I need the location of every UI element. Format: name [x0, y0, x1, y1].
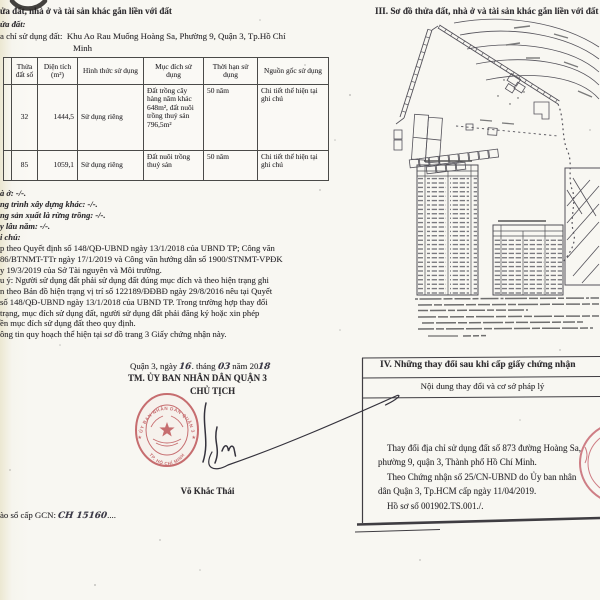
seal-star-icon: [159, 422, 174, 437]
signer-name: Võ Khắc Thái: [150, 486, 265, 496]
change-line: Thay đổi địa chỉ sử dụng đất số 873 đườn…: [378, 441, 596, 455]
col-header-thoi-han: Thời hạn sử dụng: [204, 58, 258, 85]
cadastral-map-drawing: [368, 18, 600, 350]
left-page-heading: ửa đất, nhà ở và tài sản khác gắn liền v…: [0, 6, 172, 16]
note-line: p theo Quyết định số 148/QĐ-UBND ngày 13…: [0, 243, 283, 254]
table-cell: 50 năm: [204, 85, 258, 151]
asset-line: ng trình xây dựng khác: -/-.: [0, 199, 105, 210]
note-line: trạng, mục đích sử dụng đất, người sử dụ…: [0, 308, 283, 319]
change-line: dân Quận 3, Tp.HCM cấp ngày 11/04/2019.: [378, 484, 596, 498]
signature-ink: [203, 395, 399, 468]
seal-side-star-right: ★: [192, 435, 197, 441]
gcn-dots: ....: [107, 510, 116, 520]
date-month-handwritten: 03: [217, 362, 230, 372]
address-line: a chỉ sử dụng đất: Khu Ao Rau Muống Hoàn…: [0, 31, 286, 41]
date-year-handwritten: 18: [258, 362, 271, 372]
asset-line: y lâu năm: -/-.: [0, 221, 105, 232]
parcel-subheading: ửa đất:: [0, 19, 25, 29]
land-parcel-table: Thửa đất số Diện tích (m²) Hình thức sử …: [3, 57, 329, 181]
col-header-dien-tich: Diện tích (m²): [38, 58, 78, 85]
note-line: y 19/3/2019 của Sở Tài nguyên và Môi trư…: [0, 265, 283, 276]
table-cell: 1059,1: [38, 151, 78, 180]
section4-title: IV. Những thay đổi sau khi cấp giấy chứn…: [380, 360, 576, 370]
chairman-title: CHỦ TỊCH: [190, 386, 235, 396]
date-day-handwritten: 16: [179, 362, 192, 372]
table-cell: Sử dụng riêng: [78, 85, 144, 151]
ghi-chu-notes: p theo Quyết định số 148/QĐ-UBND ngày 13…: [0, 243, 283, 340]
cadastral-map: [368, 18, 600, 350]
note-line: ền mục đích sử dụng đất theo quy định.: [0, 318, 283, 329]
col-header-thua-dat: Thửa đất số: [12, 58, 38, 85]
col-header-hinh-thuc: Hình thức sử dụng: [78, 58, 144, 85]
address-line-2: Minh: [73, 43, 92, 53]
seal-arc-top-text: ỦY BAN NHÂN DÂN QUẬN 3: [137, 405, 195, 433]
table-cell: [4, 85, 12, 151]
svg-text:TP. HỒ CHÍ MINH: TP. HỒ CHÍ MINH: [148, 452, 185, 466]
change-line: Hồ sơ số 001902.TS.001./.: [378, 499, 596, 513]
section4-body: Thay đổi địa chỉ sử dụng đất số 873 đườn…: [378, 441, 596, 513]
coordinate-table-right: [493, 221, 563, 295]
map-footnotes: [415, 298, 599, 336]
coordinate-table-left: [417, 161, 478, 295]
note-line: u ý: Người sử dụng đất phải sử dụng đất …: [0, 275, 283, 286]
col-header-muc-dich: Mục đích sử dụng: [144, 58, 204, 85]
official-seal: ỦY BAN NHÂN DÂN QUẬN 3 TP. HỒ CHÍ MINH ★…: [136, 394, 198, 466]
note-line: số 148/QĐ-UBND ngày 13/1/2018 của UBND T…: [0, 297, 283, 308]
asset-line: ng sản xuất là rừng trồng: -/-.: [0, 210, 105, 221]
authority-line: TM. ỦY BAN NHÂN DÂN QUẬN 3: [128, 373, 267, 383]
seal-side-star-left: ★: [138, 435, 143, 441]
note-line: n theo Bản đồ hiện trạng vị trí số 12218…: [0, 286, 283, 297]
change-line: phường 9, quận 3, Thành phố Hồ Chí Minh.: [378, 455, 596, 469]
seal-arc-bottom-text: TP. HỒ CHÍ MINH: [148, 452, 185, 466]
asset-line: à ở: -/-.: [0, 188, 105, 199]
asset-lines: à ở: -/-. ng trình xây dựng khác: -/-. n…: [0, 188, 105, 243]
gcn-registry-line: ào sổ cấp GCN: CH 15160....: [0, 510, 116, 521]
map-section-heading: III. Sơ đồ thửa đất, nhà ở và tài sản kh…: [375, 6, 598, 16]
table-cell: 85: [12, 151, 38, 180]
certificate-scan: { "colors": { "seal_red": "#c05a5e", "in…: [0, 0, 600, 600]
change-line: Theo Chứng nhận số 25/CN-UBND do Ủy ban …: [378, 470, 596, 484]
note-line: 86/BTNMT-TTr ngày 17/1/2019 và Công văn …: [0, 254, 283, 265]
address-value: Khu Ao Rau Muống Hoàng Sa, Phường 9, Quậ…: [67, 31, 286, 41]
asset-line: i chú:: [0, 232, 105, 243]
table-cell: [4, 151, 12, 180]
section4-column-header: Nội dung thay đổi và cơ sở pháp lý: [375, 381, 590, 391]
table-cell: Đất nuôi trồng thuỷ sản: [144, 151, 204, 180]
table-cell: 50 năm: [204, 151, 258, 180]
gcn-prefix: ào sổ cấp GCN:: [0, 510, 56, 520]
address-label: a chỉ sử dụng đất:: [0, 31, 62, 41]
note-line: ông tin quy hoạch thể hiện tại sơ đồ tra…: [0, 329, 283, 340]
date-mid: . tháng: [192, 361, 216, 371]
table-cell: Đất trồng cây hàng năm khác 648m², đất n…: [144, 85, 204, 151]
col-header-cut: [4, 58, 12, 85]
table-cell: 32: [12, 85, 38, 151]
date-mid2: năm 20: [232, 361, 258, 371]
table-cell: Sử dụng riêng: [78, 151, 144, 180]
inset-map: [565, 168, 600, 285]
gcn-number-handwritten: CH 15160: [58, 511, 108, 521]
table-cell: Chi tiết thể hiện tại ghi chú: [258, 85, 328, 151]
table-cell: 1444,5: [38, 85, 78, 151]
svg-text:ỦY BAN NHÂN DÂN QUẬN 3: ỦY BAN NHÂN DÂN QUẬN 3: [137, 405, 195, 433]
table-cell: Chi tiết thể hiện tại ghi chú: [258, 151, 328, 180]
date-line: Quận 3, ngày 16. tháng 03 năm 2018: [130, 361, 271, 372]
date-prefix: Quận 3, ngày: [130, 361, 177, 371]
col-header-nguon-goc: Nguồn gốc sử dụng: [258, 58, 328, 85]
